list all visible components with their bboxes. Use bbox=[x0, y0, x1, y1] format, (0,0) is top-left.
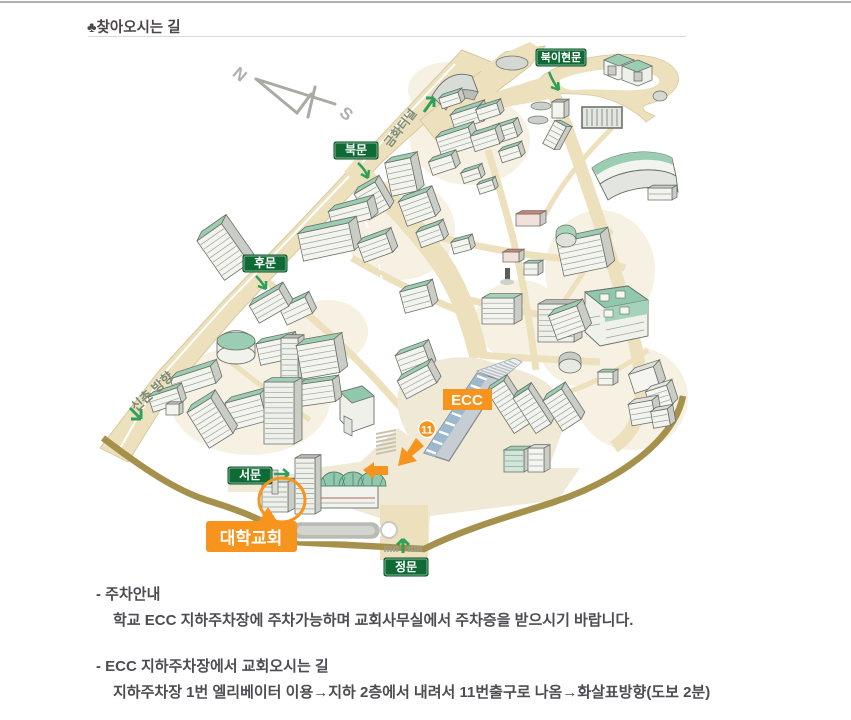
svg-text:북이현문: 북이현문 bbox=[541, 50, 581, 64]
svg-text:S: S bbox=[336, 103, 357, 125]
svg-text:대학교회: 대학교회 bbox=[220, 529, 283, 548]
svg-text:서문: 서문 bbox=[239, 467, 261, 482]
svg-text:N: N bbox=[229, 63, 251, 85]
svg-text:정문: 정문 bbox=[395, 559, 417, 574]
svg-text:북문: 북문 bbox=[345, 143, 367, 157]
svg-text:ECC: ECC bbox=[451, 392, 483, 409]
svg-text:11: 11 bbox=[421, 425, 433, 437]
svg-text:후문: 후문 bbox=[254, 255, 276, 270]
